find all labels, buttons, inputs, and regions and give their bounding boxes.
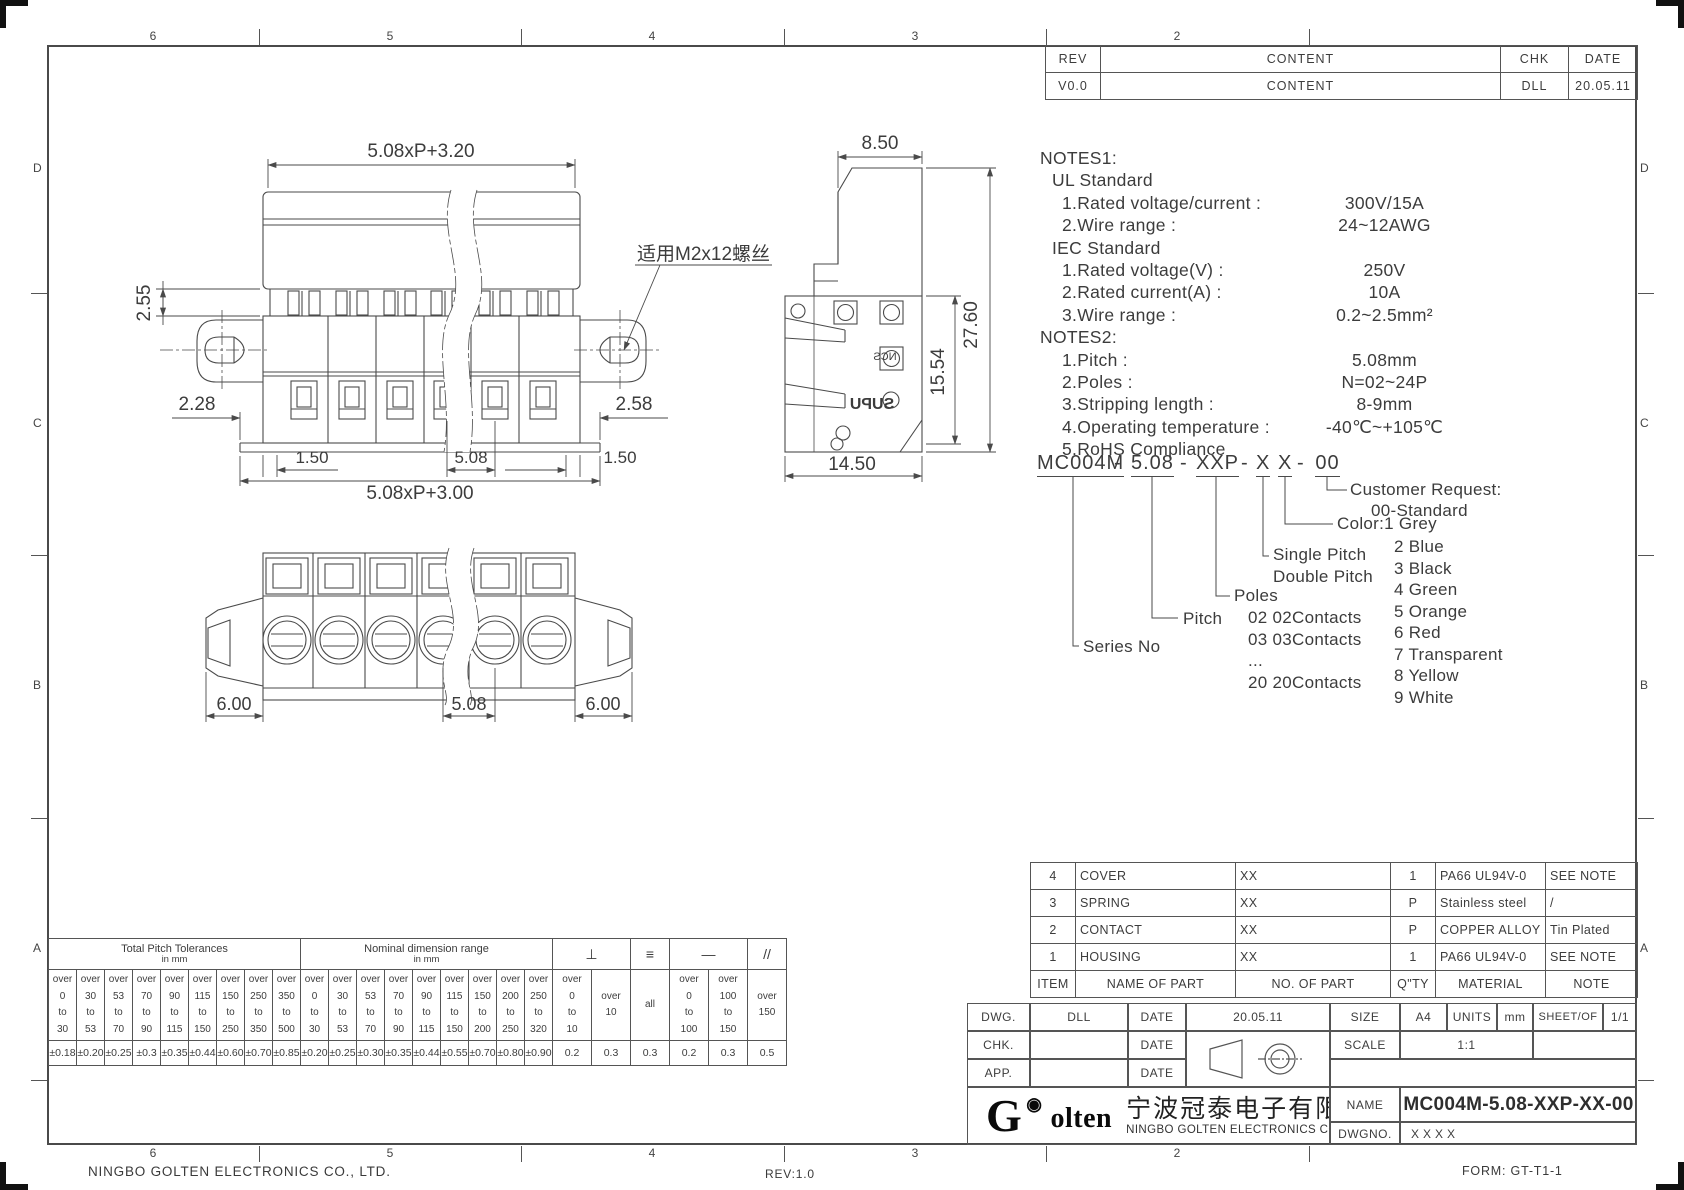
dim-bottom-pitch: 5.08 — [451, 694, 486, 714]
bom-cell: 1 — [1391, 863, 1436, 890]
zone-tick — [1046, 29, 1047, 45]
revision-cell: CONTENT — [1101, 73, 1501, 100]
sheet-label: SHEET/OF — [1533, 1003, 1603, 1031]
units-label: UNITS — [1447, 1003, 1497, 1031]
brand-supu-label: SUPU — [850, 396, 894, 413]
part-name-value: MC004M-5.08-XXP-XX-00 — [1400, 1087, 1637, 1122]
zone-tick — [259, 1146, 260, 1162]
tolerance-value-cell: ±0.30 — [357, 1041, 385, 1066]
note-line: 1.Pitch :5.08mm — [1040, 350, 1480, 372]
tolerance-range-cell: over200to250 — [497, 970, 525, 1041]
note-line: NOTES1: — [1040, 148, 1480, 170]
note-label: IEC Standard — [1040, 238, 1161, 258]
double-pitch-label: Double Pitch — [1273, 567, 1373, 587]
zone-tick — [1309, 29, 1310, 45]
dim-bottom-ear-right: 6.00 — [585, 694, 620, 714]
bom-cell: XX — [1236, 890, 1391, 917]
color-list-item: 6 Red — [1394, 623, 1503, 645]
bom-cell: COVER — [1076, 863, 1236, 890]
tolerance-value-cell: ±0.25 — [105, 1041, 133, 1066]
revision-cell: V0.0 — [1046, 73, 1101, 100]
third-angle-projection-icon — [1198, 1036, 1318, 1082]
note-line: 3.Stripping length :8-9mm — [1040, 394, 1480, 416]
units-value: mm — [1497, 1003, 1533, 1031]
customer-request-label: Customer Request: — [1350, 480, 1502, 500]
customer-standard-label: 00-Standard — [1371, 501, 1468, 521]
color-list-item: 2 Blue — [1394, 537, 1503, 559]
scale-label: SCALE — [1330, 1031, 1400, 1059]
footer-form: FORM: GT-T1-1 — [1462, 1164, 1563, 1178]
zone-label: 6 — [150, 1146, 157, 1160]
revision-cell: 20.05.11 — [1569, 73, 1638, 100]
chk-label: CHK. — [967, 1031, 1030, 1059]
dim-front-top: 5.08xP+3.20 — [367, 141, 474, 162]
tolerance-value-cell: ±0.60 — [217, 1041, 245, 1066]
note-label: NOTES2: — [1040, 327, 1117, 347]
note-label: 1.Rated voltage/current : — [1040, 193, 1261, 213]
bom-cell: SEE NOTE — [1546, 944, 1638, 971]
bom-cell: COPPER ALLOY — [1436, 917, 1546, 944]
zone-label: A — [1640, 941, 1648, 955]
note-value: 5.08mm — [1292, 350, 1477, 371]
note-value: 250V — [1292, 260, 1477, 281]
color-list-item: 9 White — [1394, 688, 1503, 710]
zone-label: 3 — [912, 29, 919, 43]
tolerance-range-cell: over53to70 — [105, 970, 133, 1041]
bom-row: 2CONTACTXXPCOPPER ALLOYTin Plated — [1031, 917, 1638, 944]
tolerance-grid: Total Pitch Tolerancesin mmNominal dimen… — [48, 938, 787, 1066]
zone-tick — [259, 29, 260, 45]
note-line: 2.Poles :N=02~24P — [1040, 372, 1480, 394]
note-line: NOTES2: — [1040, 327, 1480, 349]
tolerance-range-cell: over30to53 — [329, 970, 357, 1041]
crop-mark-icon — [1656, 1162, 1684, 1190]
bom-cell: Stainless steel — [1436, 890, 1546, 917]
tolerance-range-cell: over150to250 — [217, 970, 245, 1041]
note-label: 3.Stripping length : — [1040, 394, 1214, 414]
series-no-label: Series No — [1083, 637, 1160, 657]
tolerance-value-cell: 0.3 — [631, 1041, 670, 1066]
brand-ncs-label: NCS — [873, 351, 896, 363]
dwg-date-value: 20.05.11 — [1186, 1003, 1330, 1031]
name-label: NAME — [1330, 1087, 1400, 1122]
zone-label: 2 — [1174, 1146, 1181, 1160]
blank-cell — [1330, 1059, 1637, 1087]
tolerance-symbol-icon: ⊥ — [553, 939, 631, 970]
note-label: 4.Operating temperature : — [1040, 417, 1270, 437]
notes-block: NOTES1:UL Standard1.Rated voltage/curren… — [1040, 148, 1480, 461]
tolerance-range-cell: over70to90 — [385, 970, 413, 1041]
note-label: 3.Wire range : — [1040, 305, 1176, 325]
note-value: 8-9mm — [1292, 394, 1477, 415]
color-list: 2 Blue3 Black4 Green5 Orange6 Red7 Trans… — [1394, 537, 1503, 709]
bom-header-row: ITEMNAME OF PARTNO. OF PARTQ"TYMATERIALN… — [1031, 971, 1638, 998]
dim-front-left-offset: 2.28 — [179, 394, 216, 415]
bom-cell: HOUSING — [1076, 944, 1236, 971]
dim-front-pitch: 5.08 — [454, 448, 487, 467]
footer-company: NINGBO GOLTEN ELECTRONICS CO., LTD. — [88, 1164, 391, 1179]
bom-cell: 3 — [1031, 890, 1076, 917]
tolerance-value-cell: 0.3 — [709, 1041, 748, 1066]
note-label: 2.Rated current(A) : — [1040, 282, 1222, 302]
tolerance-range-cell: over0to100 — [670, 970, 709, 1041]
blank-cell — [1533, 1031, 1637, 1059]
bom-cell: P — [1391, 917, 1436, 944]
bom-cell: / — [1546, 890, 1638, 917]
single-pitch-label: Single Pitch — [1273, 545, 1366, 565]
bom-cell: 2 — [1031, 917, 1076, 944]
size-label: SIZE — [1330, 1003, 1400, 1031]
bom-table: 4COVERXX1PA66 UL94V-0SEE NOTE3SPRINGXXPS… — [1030, 862, 1638, 998]
tolerance-range-cell: over90to115 — [161, 970, 189, 1041]
tolerance-range-cell: over70to90 — [133, 970, 161, 1041]
company-name-cn: 宁波冠泰电子有限公司 — [1126, 1096, 1330, 1124]
poles-list: 02 02Contacts03 03Contacts...20 20Contac… — [1248, 608, 1362, 694]
note-label: 2.Poles : — [1040, 372, 1133, 392]
zone-tick — [521, 29, 522, 45]
bom-row: 3SPRINGXXPStainless steel/ — [1031, 890, 1638, 917]
revision-cell: REV — [1046, 46, 1101, 73]
tolerance-value-cell: ±0.44 — [413, 1041, 441, 1066]
zone-tick — [1046, 1146, 1047, 1162]
color-list-item: 8 Yellow — [1394, 666, 1503, 688]
revision-table: REVCONTENTCHKDATEV0.0CONTENTDLL20.05.11 — [1045, 45, 1638, 100]
zone-label: 2 — [1174, 29, 1181, 43]
tolerance-table: Total Pitch Tolerancesin mmNominal dimen… — [48, 938, 787, 1066]
note-value: N=02~24P — [1292, 372, 1477, 393]
tolerance-range-cell: over90to115 — [413, 970, 441, 1041]
tolerance-range-cell: over350to500 — [273, 970, 301, 1041]
tolerance-value-cell: ±0.18 — [49, 1041, 77, 1066]
poles-list-item: 03 03Contacts — [1248, 630, 1362, 652]
date-label: DATE — [1128, 1031, 1186, 1059]
tolerance-range-cell: over250to320 — [525, 970, 553, 1041]
bom-cell: XX — [1236, 863, 1391, 890]
dim-side-depth: 14.50 — [828, 454, 876, 475]
bom-cell: Tin Plated — [1546, 917, 1638, 944]
zone-tick — [31, 818, 47, 819]
tolerance-value-cell: ±0.44 — [189, 1041, 217, 1066]
note-line: 3.Wire range :0.2~2.5mm² — [1040, 305, 1480, 327]
dim-front-right-offset: 2.58 — [616, 394, 653, 415]
note-value: 0.2~2.5mm² — [1292, 305, 1477, 326]
crop-mark-icon — [0, 1162, 28, 1190]
tolerance-value-cell: ±0.70 — [245, 1041, 273, 1066]
zone-label: C — [1640, 416, 1649, 430]
dwgno-label: DWGNO. — [1330, 1122, 1400, 1145]
title-block: DWG. DLL DATE 20.05.11 SIZE A4 UNITS mm … — [967, 1003, 1637, 1145]
poles-label: Poles — [1234, 586, 1278, 606]
zone-tick — [1638, 1080, 1654, 1081]
crop-mark-icon — [1656, 0, 1684, 28]
note-label: 1.Pitch : — [1040, 350, 1128, 370]
date-label: DATE — [1128, 1059, 1186, 1087]
logo-rest-letters: olten — [1051, 1103, 1113, 1135]
tolerance-value-cell: ±0.90 — [525, 1041, 553, 1066]
note-line: 2.Wire range :24~12AWG — [1040, 215, 1480, 237]
bom-cell: SPRING — [1076, 890, 1236, 917]
tolerance-group-header: Total Pitch Tolerancesin mm — [49, 939, 301, 970]
tolerance-range-cell: over53to70 — [357, 970, 385, 1041]
tolerance-range-cell: over150to200 — [469, 970, 497, 1041]
projection-symbol-cell — [1186, 1031, 1330, 1087]
app-value — [1030, 1059, 1128, 1087]
footer-rev: REV:1.0 — [765, 1167, 815, 1181]
revision-row: REVCONTENTCHKDATE — [1046, 46, 1638, 73]
tolerance-symbol-icon: ≡ — [631, 939, 670, 970]
zone-label: A — [33, 941, 41, 955]
golten-logo: G◉olten 宁波冠泰电子有限公司 NINGBO GOLTEN ELECTRO… — [974, 1095, 1330, 1136]
zone-label: 5 — [387, 29, 394, 43]
tolerance-value-cell: 0.3 — [592, 1041, 631, 1066]
zone-tick — [784, 1146, 785, 1162]
note-value: 300V/15A — [1292, 193, 1477, 214]
bom-cell: PA66 UL94V-0 — [1436, 944, 1546, 971]
note-line: 2.Rated current(A) :10A — [1040, 282, 1480, 304]
note-line: IEC Standard — [1040, 238, 1480, 260]
tolerance-range-cell: over115to150 — [189, 970, 217, 1041]
dwg-label: DWG. — [967, 1003, 1030, 1031]
note-value: 24~12AWG — [1292, 215, 1477, 236]
tolerance-value-cell: 0.5 — [748, 1041, 787, 1066]
note-label: 2.Wire range : — [1040, 215, 1176, 235]
dwgno-value: XXXX — [1400, 1122, 1637, 1145]
bom-header-cell: Q"TY — [1391, 971, 1436, 998]
front-view — [160, 190, 662, 452]
dim-side-body-height: 15.54 — [928, 348, 949, 396]
dim-side-width: 8.50 — [862, 133, 899, 154]
bom-cell: CONTACT — [1076, 917, 1236, 944]
pitch-label: Pitch — [1183, 609, 1222, 629]
screw-note-label: 适用M2x12螺丝 — [637, 243, 770, 265]
side-view-texts: 8.50 27.60 15.54 14.50 NCS SUPU — [828, 133, 982, 475]
color-list-item: 4 Green — [1394, 580, 1503, 602]
tolerance-value-cell: ±0.35 — [161, 1041, 189, 1066]
poles-list-item: ... — [1248, 651, 1362, 673]
zone-tick — [1309, 1146, 1310, 1162]
tolerance-symbol-icon: — — [670, 939, 748, 970]
bom-row: 4COVERXX1PA66 UL94V-0SEE NOTE — [1031, 863, 1638, 890]
tolerance-value-cell: ±0.55 — [441, 1041, 469, 1066]
tolerance-range-cell: over30to53 — [77, 970, 105, 1041]
bottom-view-texts: 6.00 5.08 6.00 — [216, 694, 620, 714]
color-list-item: 7 Transparent — [1394, 645, 1503, 667]
tolerance-range-cell: over0to30 — [301, 970, 329, 1041]
note-value: -40℃~+105℃ — [1292, 417, 1477, 438]
chk-value — [1030, 1031, 1128, 1059]
zone-label: 6 — [150, 29, 157, 43]
bom-header-cell: MATERIAL — [1436, 971, 1546, 998]
note-label: NOTES1: — [1040, 148, 1117, 168]
drawing-sheet: 6543265432DCBADCBA REVCONTENTCHKDATEV0.0… — [0, 0, 1684, 1190]
size-value: A4 — [1400, 1003, 1447, 1031]
note-line: 4.Operating temperature :-40℃~+105℃ — [1040, 417, 1480, 439]
bom-cell: PA66 UL94V-0 — [1436, 863, 1546, 890]
bottom-view — [206, 548, 632, 705]
color-list-item: 3 Black — [1394, 559, 1503, 581]
tolerance-range-cell: all — [631, 970, 670, 1041]
dim-front-pin-height: 2.55 — [134, 285, 155, 322]
tolerance-value-cell: ±0.85 — [273, 1041, 301, 1066]
note-label: 1.Rated voltage(V) : — [1040, 260, 1224, 280]
tolerance-value-cell: 0.2 — [553, 1041, 592, 1066]
company-name-en: NINGBO GOLTEN ELECTRONICS CO., LTD. — [1126, 1124, 1330, 1136]
dim-bottom-ear-left: 6.00 — [216, 694, 251, 714]
note-label: UL Standard — [1040, 170, 1153, 190]
tolerance-value-cell: 0.2 — [670, 1041, 709, 1066]
dwg-value: DLL — [1030, 1003, 1128, 1031]
zone-tick — [784, 29, 785, 45]
note-line: 1.Rated voltage(V) :250V — [1040, 260, 1480, 282]
dim-side-total-height: 27.60 — [961, 301, 982, 349]
zone-tick — [521, 1146, 522, 1162]
tolerance-value-cell: ±0.70 — [469, 1041, 497, 1066]
tolerance-range-cell: over150 — [748, 970, 787, 1041]
company-cell: G◉olten 宁波冠泰电子有限公司 NINGBO GOLTEN ELECTRO… — [967, 1087, 1330, 1145]
bom-cell: SEE NOTE — [1546, 863, 1638, 890]
bom-cell: XX — [1236, 944, 1391, 971]
zone-label: 4 — [649, 1146, 656, 1160]
tolerance-value-cell: ±0.25 — [329, 1041, 357, 1066]
zone-tick — [31, 1080, 47, 1081]
scale-value: 1:1 — [1400, 1031, 1533, 1059]
tolerance-range-cell: over250to350 — [245, 970, 273, 1041]
zone-label: B — [1640, 678, 1648, 692]
bom-header-cell: ITEM — [1031, 971, 1076, 998]
bom-cell: XX — [1236, 917, 1391, 944]
app-label: APP. — [967, 1059, 1030, 1087]
note-line: 1.Rated voltage/current :300V/15A — [1040, 193, 1480, 215]
tolerance-symbol-icon: // — [748, 939, 787, 970]
poles-list-item: 02 02Contacts — [1248, 608, 1362, 630]
bom-cell: 1 — [1031, 944, 1076, 971]
revision-cell: CONTENT — [1101, 46, 1501, 73]
tolerance-value-cell: ±0.35 — [385, 1041, 413, 1066]
tolerance-value-cell: ±0.20 — [77, 1041, 105, 1066]
dim-front-b-left: 1.50 — [295, 448, 328, 467]
revision-cell: CHK — [1501, 46, 1569, 73]
dim-front-b-right: 1.50 — [603, 448, 636, 467]
zone-label: 5 — [387, 1146, 394, 1160]
date-label: DATE — [1128, 1003, 1186, 1031]
tolerance-value-cell: ±0.80 — [497, 1041, 525, 1066]
logo-g-letter: G — [986, 1095, 1022, 1136]
note-value: 10A — [1292, 282, 1477, 303]
tolerance-value-cell: ±0.3 — [133, 1041, 161, 1066]
tolerance-range-cell: over0to10 — [553, 970, 592, 1041]
bom-header-cell: NOTE — [1546, 971, 1638, 998]
bom-cell: 4 — [1031, 863, 1076, 890]
bom-header-cell: NO. OF PART — [1236, 971, 1391, 998]
tolerance-value-cell: ±0.20 — [301, 1041, 329, 1066]
crop-mark-icon — [0, 0, 28, 28]
revision-row: V0.0CONTENTDLL20.05.11 — [1046, 73, 1638, 100]
tolerance-range-cell: over115to150 — [441, 970, 469, 1041]
bom-cell: 1 — [1391, 944, 1436, 971]
drawing-views: 5.08xP+3.20 2.55 2.28 2.58 1.50 5.08 1.5… — [40, 100, 1000, 770]
tolerance-range-cell: over100to150 — [709, 970, 748, 1041]
note-line: UL Standard — [1040, 170, 1480, 192]
sheet-value: 1/1 — [1603, 1003, 1637, 1031]
color-list-item: 5 Orange — [1394, 602, 1503, 624]
tolerance-range-cell: over0to30 — [49, 970, 77, 1041]
revision-cell: DATE — [1569, 46, 1638, 73]
logo-dot-icon: ◉ — [1026, 1094, 1042, 1115]
zone-tick — [1638, 818, 1654, 819]
bottom-view-dimensions — [206, 668, 632, 722]
zone-tick — [1638, 293, 1654, 294]
tolerance-group-header: Nominal dimension rangein mm — [301, 939, 553, 970]
bom-row: 1HOUSINGXX1PA66 UL94V-0SEE NOTE — [1031, 944, 1638, 971]
zone-label: 3 — [912, 1146, 919, 1160]
bom-cell: P — [1391, 890, 1436, 917]
revision-cell: DLL — [1501, 73, 1569, 100]
zone-label: 4 — [649, 29, 656, 43]
poles-list-item: 20 20Contacts — [1248, 673, 1362, 695]
bom-header-cell: NAME OF PART — [1076, 971, 1236, 998]
zone-tick — [1638, 555, 1654, 556]
tolerance-range-cell: over10 — [592, 970, 631, 1041]
dim-front-bottom: 5.08xP+3.00 — [366, 483, 473, 504]
zone-label: D — [1640, 161, 1649, 175]
